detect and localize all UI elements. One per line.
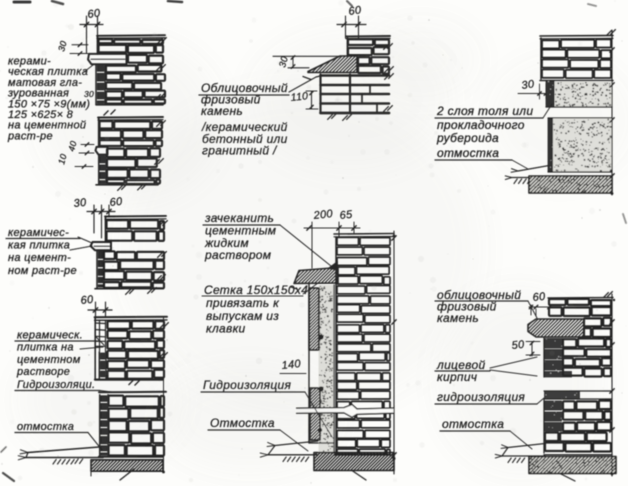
svg-text:кая плитка: кая плитка: [8, 240, 70, 252]
svg-text:60: 60: [87, 7, 102, 21]
svg-text:рубероида: рубероида: [436, 131, 499, 145]
svg-text:60: 60: [80, 294, 95, 307]
svg-text:керамическ.: керамическ.: [17, 330, 83, 342]
svg-text:30: 30: [73, 197, 88, 210]
svg-text:60: 60: [348, 4, 363, 18]
svg-text:керамичес-: керамичес-: [8, 227, 69, 239]
svg-text:на цемент-: на цемент-: [8, 252, 71, 264]
svg-text:ном раст-ре: ном раст-ре: [8, 265, 77, 277]
